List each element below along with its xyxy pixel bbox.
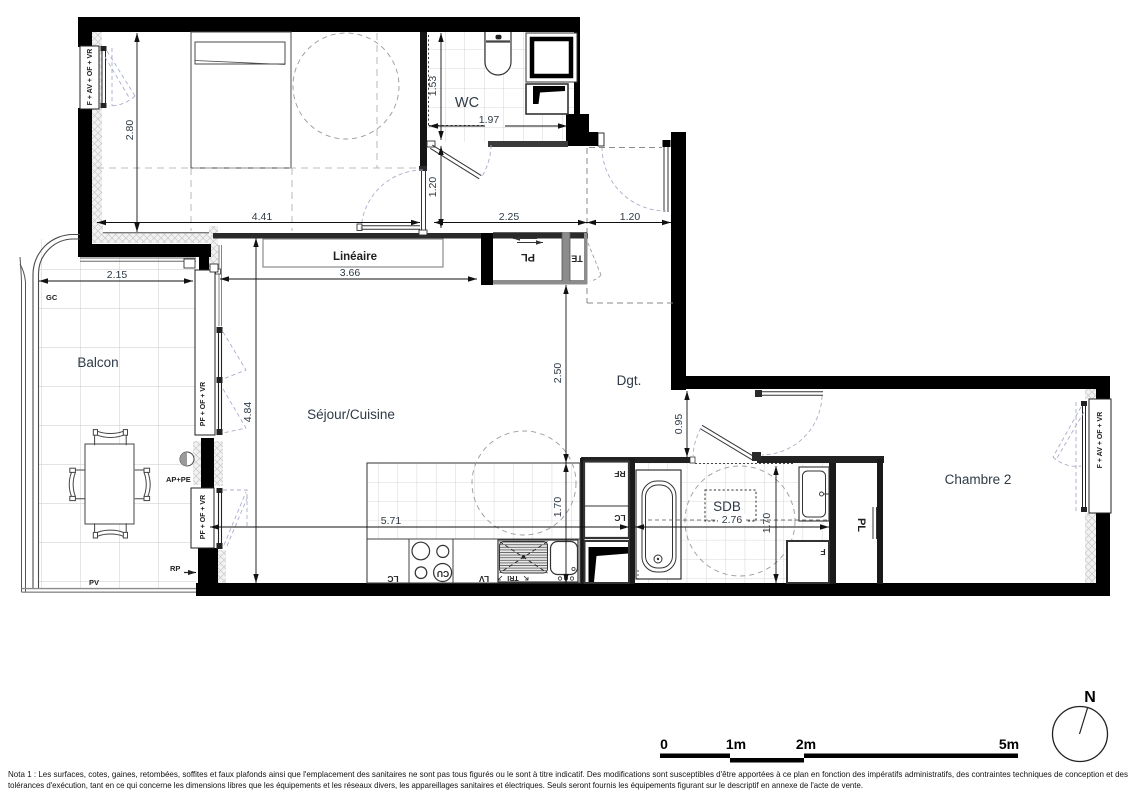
svg-text:N: N: [1084, 689, 1096, 706]
svg-text:TRI: TRI: [507, 574, 518, 581]
svg-text:RF: RF: [614, 469, 625, 479]
svg-text:2.80: 2.80: [124, 120, 136, 141]
svg-text:1.53: 1.53: [427, 76, 439, 97]
svg-text:3.66: 3.66: [340, 267, 361, 279]
svg-text:0: 0: [660, 736, 668, 752]
svg-text:Chambre 2: Chambre 2: [945, 472, 1012, 487]
svg-text:Nota 1 : Les surfaces, cotes,: Nota 1 : Les surfaces, cotes, gaines, re…: [8, 769, 1128, 779]
svg-text:PF + OF + VR: PF + OF + VR: [200, 382, 207, 426]
svg-text:5.71: 5.71: [381, 515, 402, 527]
svg-text:Dgt.: Dgt.: [617, 373, 642, 388]
svg-text:1.70: 1.70: [552, 497, 564, 518]
svg-text:4.41: 4.41: [252, 211, 273, 223]
svg-text:PF + OF + VR: PF + OF + VR: [200, 495, 207, 539]
svg-text:Séjour/Cuisine: Séjour/Cuisine: [307, 407, 395, 422]
svg-text:LV: LV: [479, 574, 490, 584]
svg-text:LC: LC: [387, 574, 398, 584]
svg-text:F: F: [820, 547, 825, 557]
svg-text:GC: GC: [46, 293, 58, 302]
svg-text:5m: 5m: [999, 736, 1019, 752]
svg-text:RP: RP: [170, 564, 180, 573]
svg-text:WC: WC: [455, 95, 479, 111]
svg-text:1.70: 1.70: [761, 513, 773, 534]
svg-text:PV: PV: [89, 578, 99, 587]
svg-text:F + AV + OF + VR: F + AV + OF + VR: [87, 49, 94, 106]
svg-text:1m: 1m: [726, 736, 746, 752]
svg-text:1.20: 1.20: [427, 177, 439, 198]
svg-text:Balcon: Balcon: [77, 355, 118, 370]
svg-text:2.15: 2.15: [107, 269, 128, 281]
svg-text:1.97: 1.97: [479, 114, 500, 126]
svg-text:2.50: 2.50: [552, 363, 564, 384]
svg-text:LC: LC: [614, 513, 625, 523]
svg-text:2.25: 2.25: [499, 211, 520, 223]
svg-text:1.20: 1.20: [620, 211, 641, 223]
svg-text:PL: PL: [855, 518, 867, 532]
svg-text:AP+PE: AP+PE: [166, 475, 191, 484]
svg-text:4.84: 4.84: [242, 402, 254, 423]
svg-text:PL: PL: [521, 251, 535, 263]
svg-text:Linéaire: Linéaire: [333, 251, 377, 263]
svg-text:TE: TE: [571, 254, 583, 264]
svg-text:2m: 2m: [796, 736, 816, 752]
svg-text:F + AV + OF + VR: F + AV + OF + VR: [1097, 412, 1104, 469]
svg-text:2.76: 2.76: [722, 514, 743, 526]
svg-text:CU: CU: [437, 569, 449, 579]
svg-text:SDB: SDB: [713, 499, 741, 514]
svg-text:tolérances d'exécution, tant e: tolérances d'exécution, tant en ce qui c…: [8, 780, 863, 790]
svg-text:0.95: 0.95: [673, 414, 685, 435]
